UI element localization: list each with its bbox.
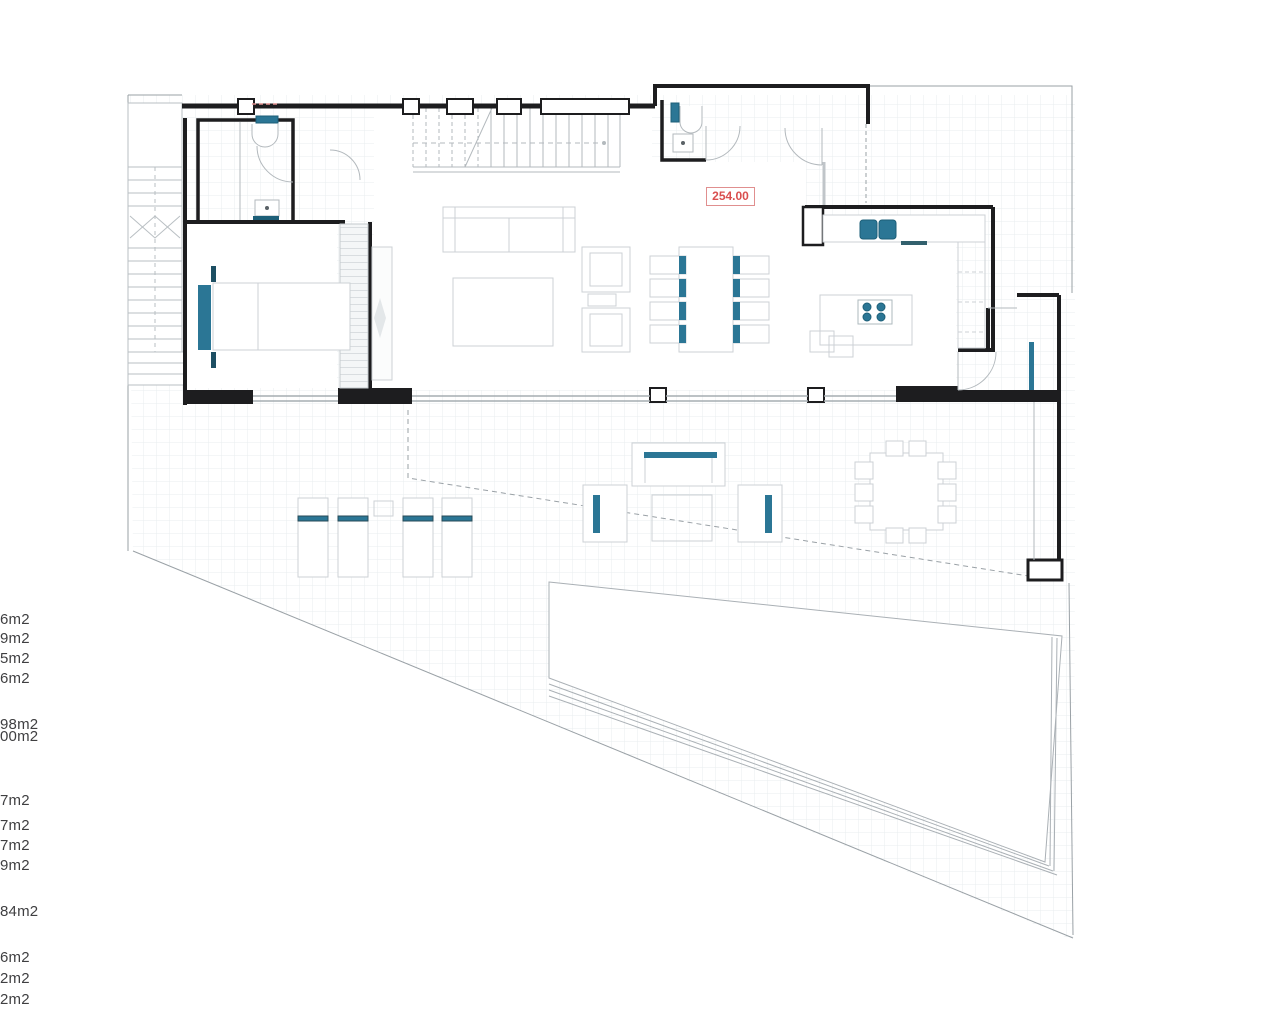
area-label: 2m2 <box>0 971 30 987</box>
area-label: 7m2 <box>0 793 30 809</box>
area-label: 00m2 <box>0 729 38 745</box>
outdoor-armchair <box>583 485 627 542</box>
hob-burner <box>877 313 885 321</box>
area-label: 9m2 <box>0 858 30 874</box>
wc-sink <box>671 103 679 122</box>
pantry-door <box>1029 342 1034 390</box>
area-label: 6m2 <box>0 612 30 628</box>
bed-headboard <box>198 285 211 350</box>
area-label: 6m2 <box>0 671 30 687</box>
pantry <box>1029 342 1034 390</box>
level-dimension-label: 254.00 <box>706 187 755 206</box>
area-label: 9m2 <box>0 631 30 647</box>
bed <box>213 283 350 350</box>
outdoor-armchair <box>738 485 782 542</box>
floor-plan-canvas: 254.00 6m2 9m2 5m2 6m2 98m2 00m2 7m2 7m2… <box>0 0 1280 1024</box>
outdoor-dining-table <box>870 453 943 530</box>
area-label: 84m2 <box>0 904 38 920</box>
dining-table <box>679 247 733 352</box>
hob-burner <box>863 313 871 321</box>
area-label: 7m2 <box>0 818 30 834</box>
kitchen-sink <box>860 220 877 239</box>
kitchen-counter <box>823 215 985 242</box>
area-label: 6m2 <box>0 950 30 966</box>
armchair <box>582 247 630 292</box>
hob-burner <box>877 303 885 311</box>
area-label: 5m2 <box>0 651 30 667</box>
floor-plan-drawing <box>0 0 1280 1024</box>
bathroom-window <box>256 116 278 123</box>
washbasin <box>252 124 278 147</box>
wc-basin <box>680 106 702 133</box>
kitchen-sink <box>879 220 896 239</box>
area-label: 2m2 <box>0 992 30 1008</box>
exterior-staircase <box>128 103 185 385</box>
armchair <box>582 308 630 352</box>
area-label: 7m2 <box>0 838 30 854</box>
outdoor-sofa <box>632 443 725 486</box>
hob-burner <box>863 303 871 311</box>
outdoor-dining-set <box>855 441 956 543</box>
